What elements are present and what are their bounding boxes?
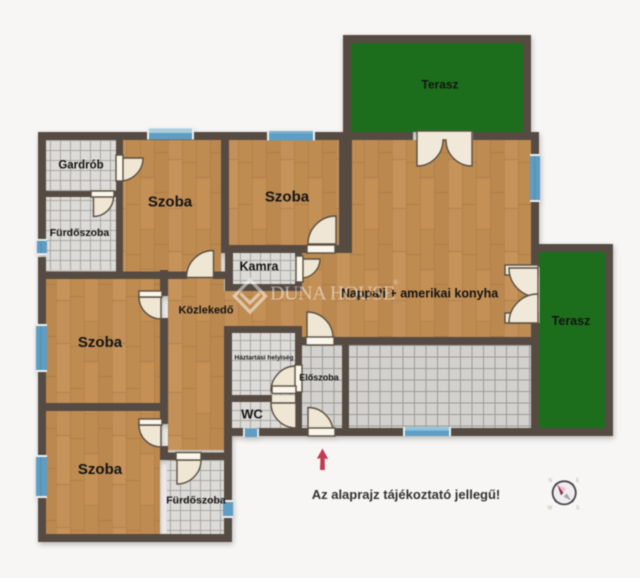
svg-text:Gardrób: Gardrób xyxy=(58,160,103,172)
svg-text:Szoba: Szoba xyxy=(265,189,310,206)
svg-text:Terasz: Terasz xyxy=(552,314,591,328)
svg-text:Előszoba: Előszoba xyxy=(299,373,340,383)
svg-text:N: N xyxy=(549,478,553,484)
svg-text:Közlekedő: Közlekedő xyxy=(178,305,233,317)
svg-text:DUNA HOUSE: DUNA HOUSE xyxy=(270,283,395,305)
svg-text:Szoba: Szoba xyxy=(148,194,193,211)
svg-text:Szoba: Szoba xyxy=(78,334,123,351)
svg-text:Az alaprajz tájékoztató jelleg: Az alaprajz tájékoztató jellegű! xyxy=(312,487,501,502)
svg-text:WC: WC xyxy=(241,407,263,422)
svg-text:Szoba: Szoba xyxy=(78,461,123,478)
svg-text:Háztartási helyiség: Háztartási helyiség xyxy=(235,355,294,362)
svg-text:Fürdőszoba: Fürdőszoba xyxy=(166,495,226,507)
svg-text:®: ® xyxy=(393,278,399,287)
svg-text:Terasz: Terasz xyxy=(421,78,458,92)
svg-text:Kamra: Kamra xyxy=(240,260,280,274)
svg-text:Fürdőszoba: Fürdőszoba xyxy=(50,227,110,239)
svg-text:W: W xyxy=(548,506,553,512)
